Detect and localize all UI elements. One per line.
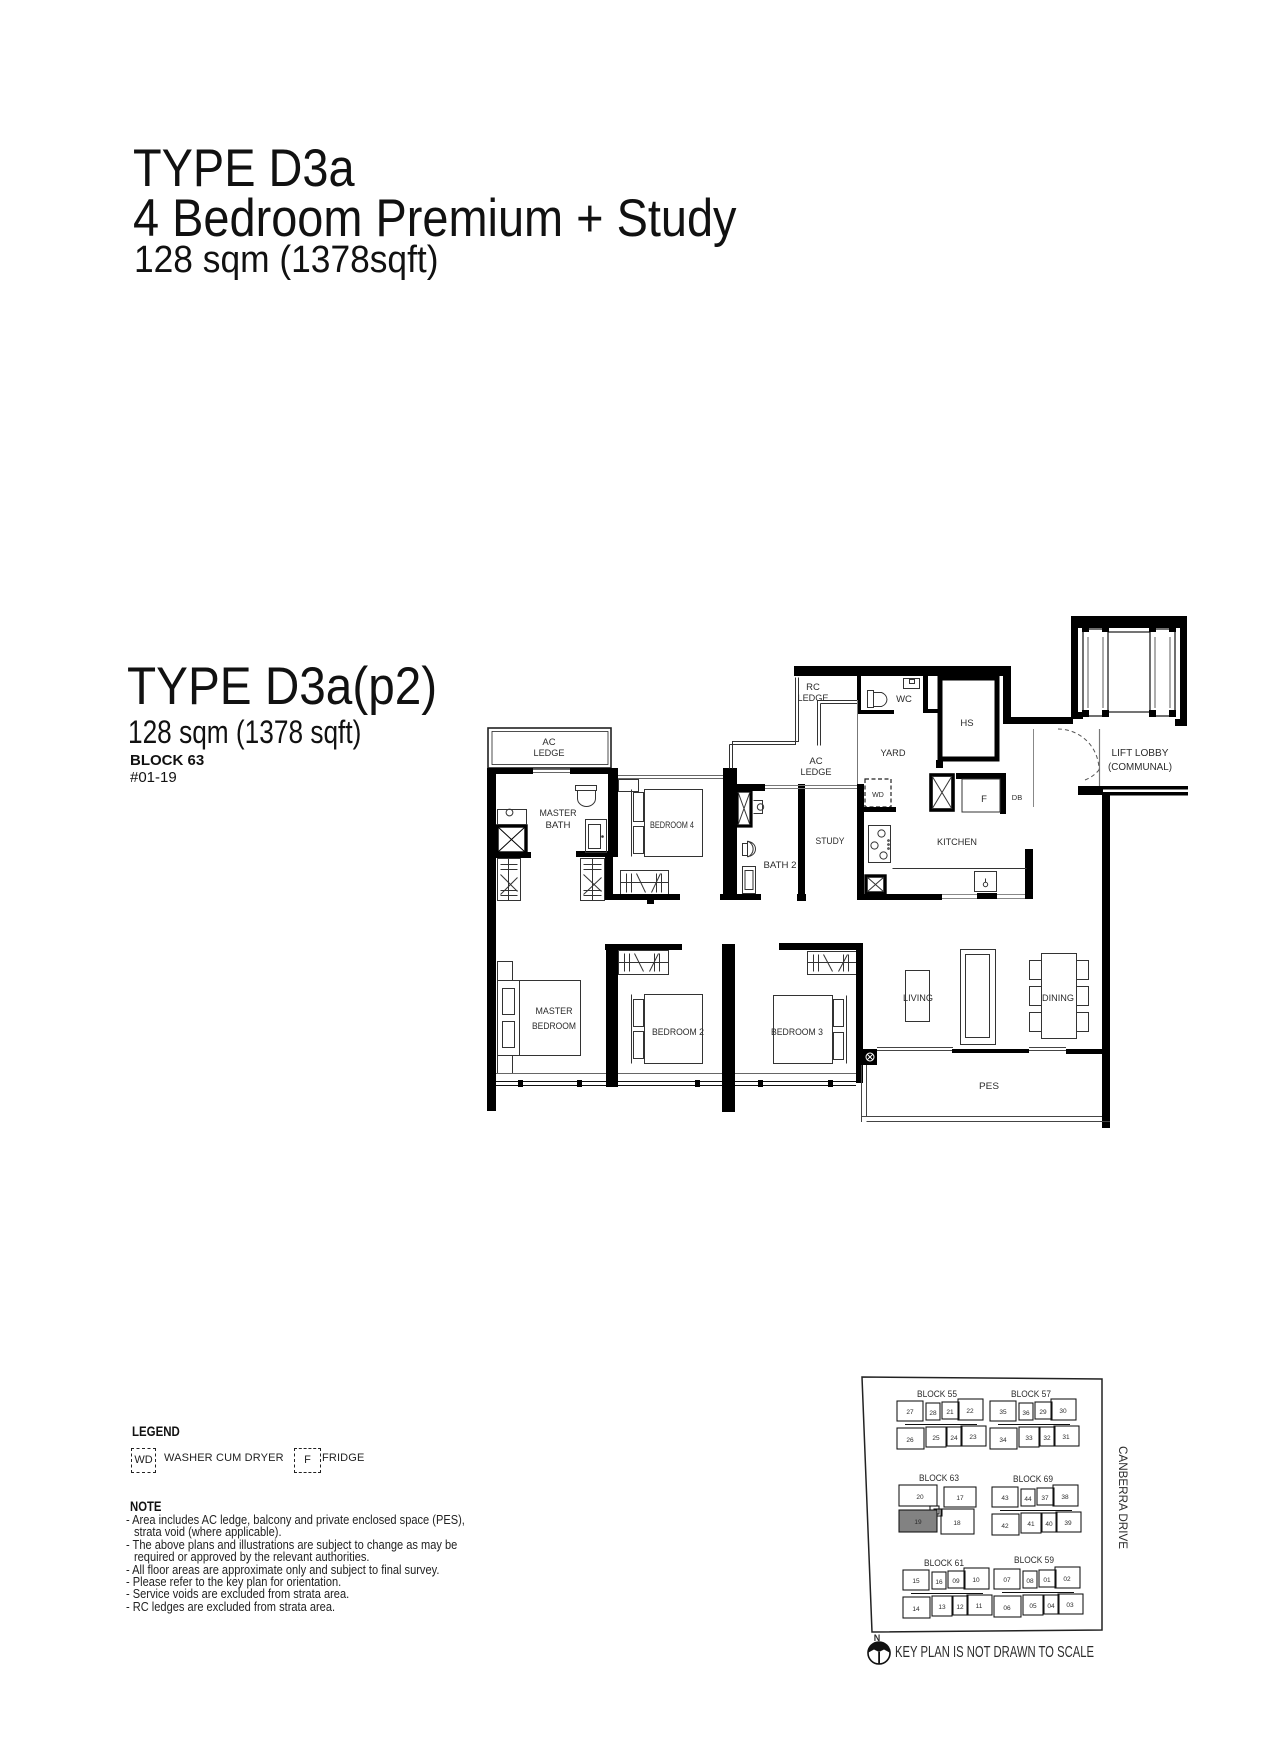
svg-text:KEY PLAN IS NOT DRAWN TO SCALE: KEY PLAN IS NOT DRAWN TO SCALE — [895, 1644, 1094, 1661]
svg-text:03: 03 — [1066, 1602, 1074, 1609]
svg-text:RC: RC — [806, 682, 820, 693]
svg-text:PES: PES — [979, 1081, 999, 1092]
svg-text:29: 29 — [1039, 1409, 1047, 1416]
svg-text:31: 31 — [1062, 1434, 1070, 1441]
svg-text:BATH 2: BATH 2 — [764, 860, 797, 871]
svg-text:STUDY: STUDY — [816, 836, 846, 847]
svg-text:26: 26 — [906, 1437, 914, 1444]
svg-text:16: 16 — [935, 1579, 943, 1586]
svg-text:MASTER: MASTER — [536, 1006, 573, 1017]
svg-text:07: 07 — [1003, 1577, 1011, 1584]
svg-text:17: 17 — [956, 1495, 964, 1502]
svg-text:DB: DB — [1012, 793, 1022, 802]
svg-text:YARD: YARD — [881, 748, 906, 759]
svg-text:BLOCK 55: BLOCK 55 — [917, 1389, 957, 1400]
svg-text:LIFT LOBBY: LIFT LOBBY — [1112, 747, 1169, 759]
svg-text:18: 18 — [953, 1520, 961, 1527]
svg-text:23: 23 — [969, 1434, 977, 1441]
svg-text:F: F — [981, 794, 987, 805]
svg-text:BEDROOM: BEDROOM — [532, 1021, 576, 1032]
svg-text:21: 21 — [946, 1409, 954, 1416]
svg-text:LEDGE: LEDGE — [534, 748, 565, 759]
svg-text:37: 37 — [1041, 1495, 1049, 1502]
svg-text:MASTER: MASTER — [540, 808, 577, 819]
svg-text:27: 27 — [906, 1409, 914, 1416]
svg-text:34: 34 — [999, 1437, 1007, 1444]
svg-text:41: 41 — [1027, 1521, 1035, 1528]
svg-text:20: 20 — [916, 1494, 924, 1501]
svg-text:BEDROOM 3: BEDROOM 3 — [771, 1027, 823, 1038]
svg-text:BLOCK 63: BLOCK 63 — [919, 1473, 959, 1484]
svg-text:04: 04 — [1047, 1603, 1055, 1610]
svg-text:25: 25 — [932, 1435, 940, 1442]
svg-text:33: 33 — [1025, 1435, 1033, 1442]
svg-text:44: 44 — [1024, 1496, 1032, 1503]
svg-text:WC: WC — [896, 694, 912, 705]
svg-text:05: 05 — [1029, 1603, 1037, 1610]
svg-text:BLOCK 57: BLOCK 57 — [1011, 1389, 1051, 1400]
svg-text:LEDGE: LEDGE — [801, 767, 832, 778]
svg-text:30: 30 — [1059, 1408, 1067, 1415]
svg-text:42: 42 — [1001, 1523, 1009, 1530]
svg-text:01: 01 — [1043, 1577, 1051, 1584]
svg-text:CANBERRA DRIVE: CANBERRA DRIVE — [1116, 1446, 1128, 1549]
svg-text:19: 19 — [914, 1519, 922, 1526]
svg-text:11: 11 — [976, 1603, 983, 1610]
svg-text:WD: WD — [872, 792, 884, 799]
svg-text:36: 36 — [1022, 1410, 1030, 1417]
svg-text:BLOCK 61: BLOCK 61 — [924, 1558, 964, 1569]
svg-text:38: 38 — [1061, 1494, 1069, 1501]
svg-text:22: 22 — [966, 1408, 974, 1415]
svg-text:24: 24 — [950, 1435, 958, 1442]
svg-text:28: 28 — [929, 1410, 937, 1417]
svg-text:BATH: BATH — [546, 820, 571, 831]
svg-text:BEDROOM 2: BEDROOM 2 — [652, 1027, 704, 1038]
svg-text:BLOCK 59: BLOCK 59 — [1014, 1555, 1054, 1566]
svg-text:35: 35 — [999, 1409, 1007, 1416]
svg-text:AC: AC — [542, 737, 555, 748]
svg-text:09: 09 — [952, 1578, 960, 1585]
svg-text:BLOCK 69: BLOCK 69 — [1013, 1474, 1053, 1485]
svg-text:43: 43 — [1001, 1495, 1009, 1502]
svg-text:KITCHEN: KITCHEN — [937, 837, 977, 848]
svg-text:HS: HS — [960, 718, 973, 729]
svg-text:13: 13 — [938, 1604, 946, 1611]
svg-text:08: 08 — [1026, 1578, 1034, 1585]
svg-text:BEDROOM 4: BEDROOM 4 — [650, 820, 694, 831]
svg-text:14: 14 — [912, 1606, 920, 1613]
svg-text:02: 02 — [1063, 1576, 1071, 1583]
svg-text:39: 39 — [1064, 1520, 1072, 1527]
svg-text:LEDGE: LEDGE — [798, 693, 829, 704]
svg-text:40: 40 — [1045, 1521, 1053, 1528]
svg-text:15: 15 — [912, 1578, 920, 1585]
svg-text:LIVING: LIVING — [903, 993, 933, 1004]
svg-text:(COMMUNAL): (COMMUNAL) — [1108, 761, 1172, 773]
svg-text:AC: AC — [809, 756, 822, 767]
svg-text:06: 06 — [1003, 1605, 1011, 1612]
svg-text:12: 12 — [956, 1604, 964, 1611]
svg-text:32: 32 — [1043, 1435, 1051, 1442]
svg-text:10: 10 — [972, 1577, 980, 1584]
svg-text:DINING: DINING — [1042, 993, 1074, 1004]
